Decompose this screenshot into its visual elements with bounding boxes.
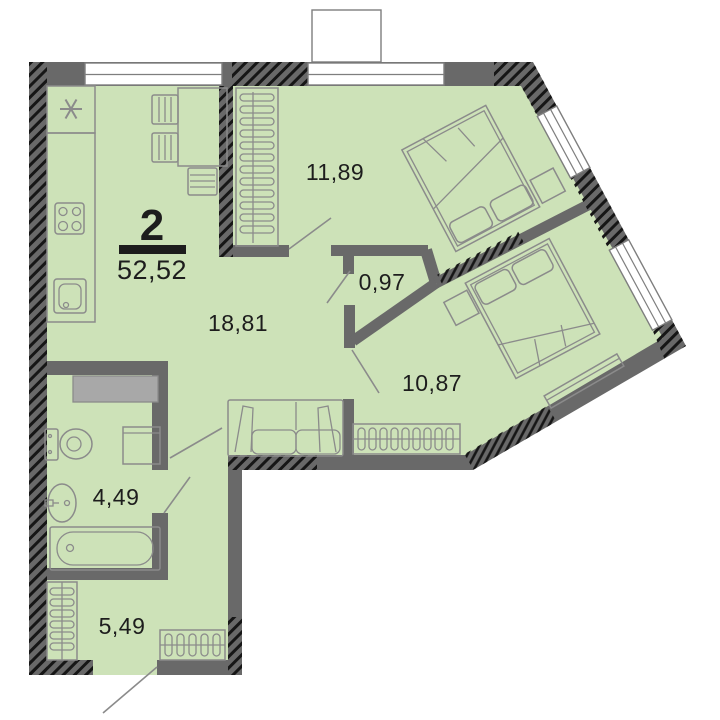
plumbing-shaft [73, 376, 158, 402]
entrance-opening [93, 660, 157, 675]
radiator-hallway-icon [160, 630, 225, 660]
window-kitchen [85, 63, 222, 85]
room-area-bedroom-1: 11,89 [306, 159, 364, 185]
room-area-bathroom: 4,49 [93, 484, 140, 510]
room-area-hallway: 5,49 [99, 613, 146, 639]
floor-plan: 11,89 0,97 18,81 10,87 4,49 5,49 2 52,52 [0, 0, 720, 720]
room-area-closet: 0,97 [359, 269, 406, 295]
rooms-count-label: 2 [140, 201, 164, 250]
exterior-shaft-box [312, 10, 381, 62]
room-area-bedroom-2: 10,87 [402, 370, 462, 396]
summary-divider [119, 245, 186, 254]
total-area-label: 52,52 [117, 255, 187, 285]
floor-plan-svg: 11,89 0,97 18,81 10,87 4,49 5,49 2 52,52 [0, 0, 720, 720]
window-living [308, 63, 444, 85]
room-area-living: 18,81 [208, 310, 268, 336]
